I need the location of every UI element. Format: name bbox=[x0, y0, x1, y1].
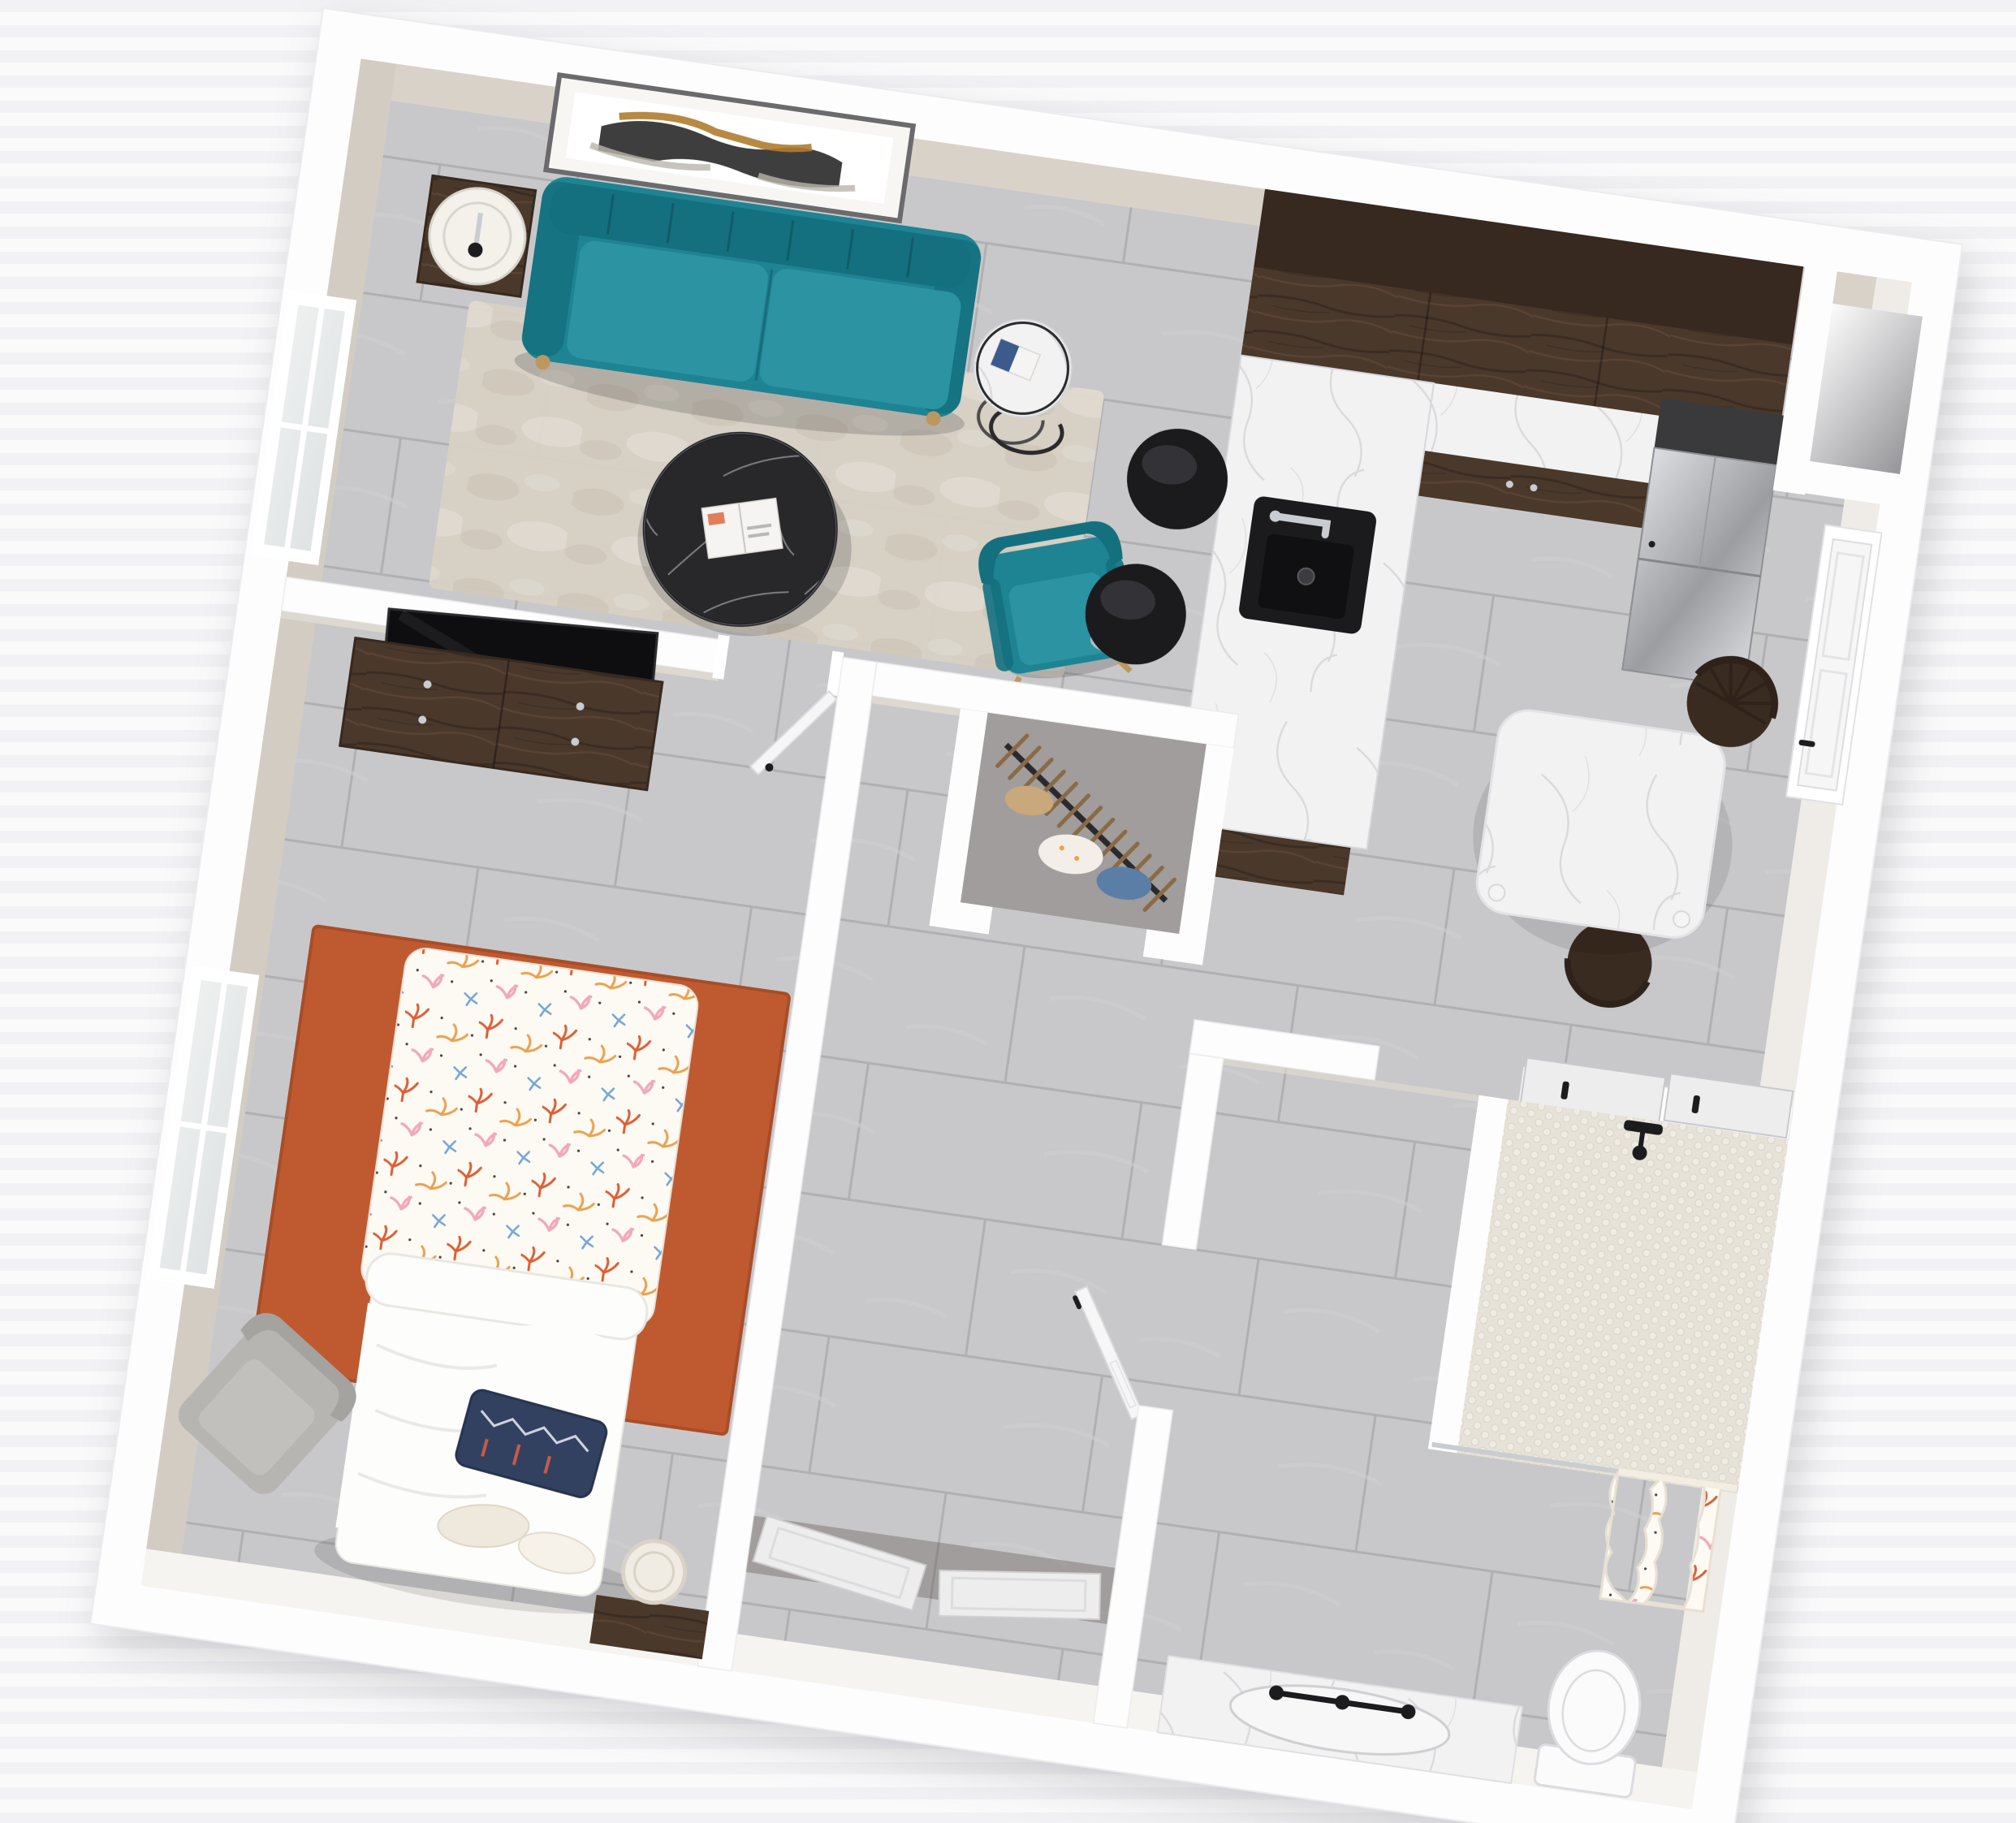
kitchen-sink bbox=[1237, 495, 1377, 635]
apartment-plan bbox=[90, 8, 1962, 1823]
foot-pillow bbox=[438, 1505, 529, 1547]
open-magazine bbox=[701, 499, 783, 559]
marble-dining-table bbox=[1473, 706, 1729, 942]
screenshot-canvas bbox=[0, 0, 2016, 1823]
floor-plan-render bbox=[0, 0, 2016, 1823]
